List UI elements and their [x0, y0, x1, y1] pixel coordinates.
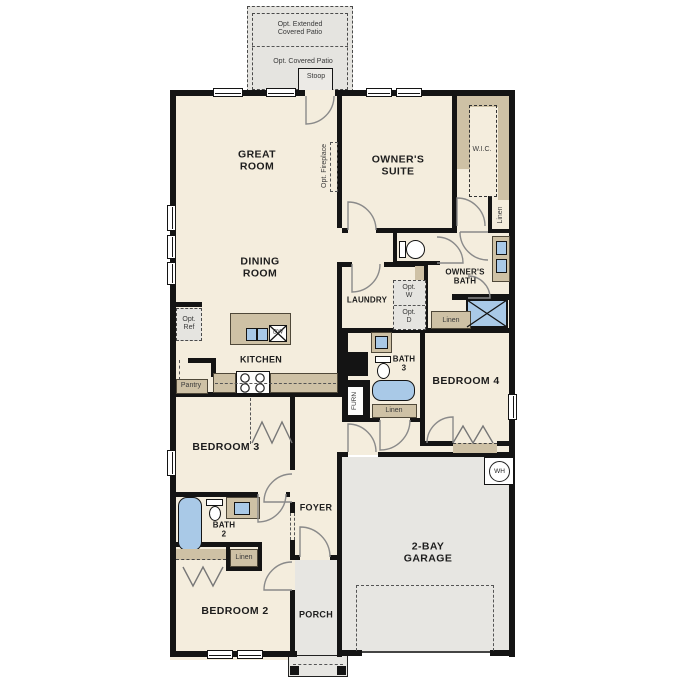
floor-plan: WH	[0, 0, 687, 687]
water-heater: WH	[489, 461, 510, 482]
wic-label: W.I.C.	[472, 146, 491, 154]
closet-dashed-line	[250, 398, 251, 444]
linen-label: Linen	[442, 317, 459, 325]
opt-dryer-label: Opt. D	[402, 309, 415, 326]
porch-post	[290, 666, 299, 675]
pantry-dashed-line	[179, 360, 180, 380]
wall	[258, 547, 262, 569]
toilet	[206, 499, 223, 506]
shower	[466, 299, 508, 328]
sink	[246, 328, 257, 341]
toilet	[209, 506, 221, 521]
owners-bath-label: OWNER'S BATH	[445, 268, 484, 287]
wall	[170, 651, 207, 657]
wic-shelf	[498, 96, 509, 200]
sink	[234, 502, 250, 515]
closet-shelf	[176, 549, 226, 560]
wall	[290, 590, 295, 657]
bath-2-label: BATH 2	[213, 521, 235, 540]
opt-extended-patio-label: Opt. Extended Covered Patio	[278, 21, 323, 38]
opt-ref-label: Opt. Ref	[182, 316, 195, 333]
wall	[176, 302, 202, 307]
sink	[375, 336, 388, 349]
dining-room-label: DINING ROOM	[240, 256, 279, 281]
wall	[290, 397, 295, 470]
furnace-label: FURN	[351, 392, 359, 410]
foyer-label: FOYER	[300, 503, 333, 514]
wall	[290, 502, 295, 513]
stoop-label: Stoop	[307, 73, 325, 81]
patio-divider-line	[252, 46, 348, 47]
porch-label: PORCH	[299, 610, 333, 621]
linen-label: Linen	[497, 206, 505, 223]
opt-washer-label: Opt. W	[402, 284, 415, 301]
wall	[170, 476, 176, 657]
window	[167, 235, 176, 259]
toilet	[406, 240, 425, 259]
opt-covered-patio-label: Opt. Covered Patio	[273, 58, 333, 66]
porch-post	[337, 666, 346, 675]
wall	[226, 567, 262, 571]
garage-label: 2-BAY GARAGE	[404, 541, 453, 566]
pantry-label: Pantry	[181, 382, 201, 390]
window	[167, 450, 176, 476]
window	[167, 262, 176, 285]
washer-dryer-divider	[394, 305, 425, 306]
laundry-label: LAUNDRY	[347, 295, 387, 304]
porch-dashed-line	[293, 664, 343, 665]
bath-3-label: BATH 3	[393, 355, 415, 374]
wall	[170, 96, 176, 205]
water-heater-label: WH	[494, 468, 505, 475]
wall	[452, 196, 457, 233]
toilet	[375, 356, 391, 363]
toilet	[377, 363, 390, 379]
opt-fireplace-label: Opt. Fireplace	[321, 144, 329, 188]
kitchen-label: KITCHEN	[240, 355, 282, 366]
wall	[420, 441, 453, 446]
wall	[376, 228, 393, 233]
garage-dashed-area	[356, 585, 494, 651]
bedroom-4-label: BEDROOM 4	[432, 375, 499, 387]
bedroom-2-label: BEDROOM 2	[201, 605, 268, 617]
bathtub	[372, 380, 415, 401]
sink	[257, 328, 268, 341]
window	[396, 88, 422, 97]
opt-fireplace-outline	[330, 142, 338, 192]
window	[207, 650, 233, 659]
owners-suite-label: OWNER'S SUITE	[372, 154, 425, 179]
wall	[290, 555, 300, 560]
window	[213, 88, 243, 97]
foyer-cased-opening	[290, 513, 295, 540]
window	[167, 205, 176, 231]
wall	[393, 228, 455, 233]
wall	[342, 452, 348, 457]
dishwasher-label: DW	[273, 329, 283, 336]
wall	[488, 196, 492, 233]
wall	[286, 492, 290, 497]
linen-label: Linen	[385, 407, 402, 415]
window	[266, 88, 296, 97]
bedroom-3-label: BEDROOM 3	[192, 441, 259, 453]
wall	[393, 233, 397, 263]
bathtub	[178, 497, 202, 551]
wall	[342, 228, 348, 233]
window	[237, 650, 263, 659]
linen-label: Linen	[235, 554, 252, 562]
counter-dashed-line	[215, 383, 336, 384]
wall	[348, 352, 368, 376]
wall	[330, 555, 342, 560]
sink	[496, 241, 507, 255]
toilet	[399, 241, 406, 258]
great-room-label: GREAT ROOM	[238, 149, 276, 174]
wall	[410, 418, 420, 422]
wall	[342, 262, 352, 267]
window	[508, 394, 517, 420]
wall	[488, 229, 514, 233]
garage-door-line	[362, 651, 490, 653]
wall	[420, 333, 425, 441]
window	[366, 88, 392, 97]
closet-shelf	[453, 443, 497, 453]
wall	[497, 441, 514, 446]
porch-floor	[295, 560, 337, 657]
sink	[496, 259, 507, 273]
